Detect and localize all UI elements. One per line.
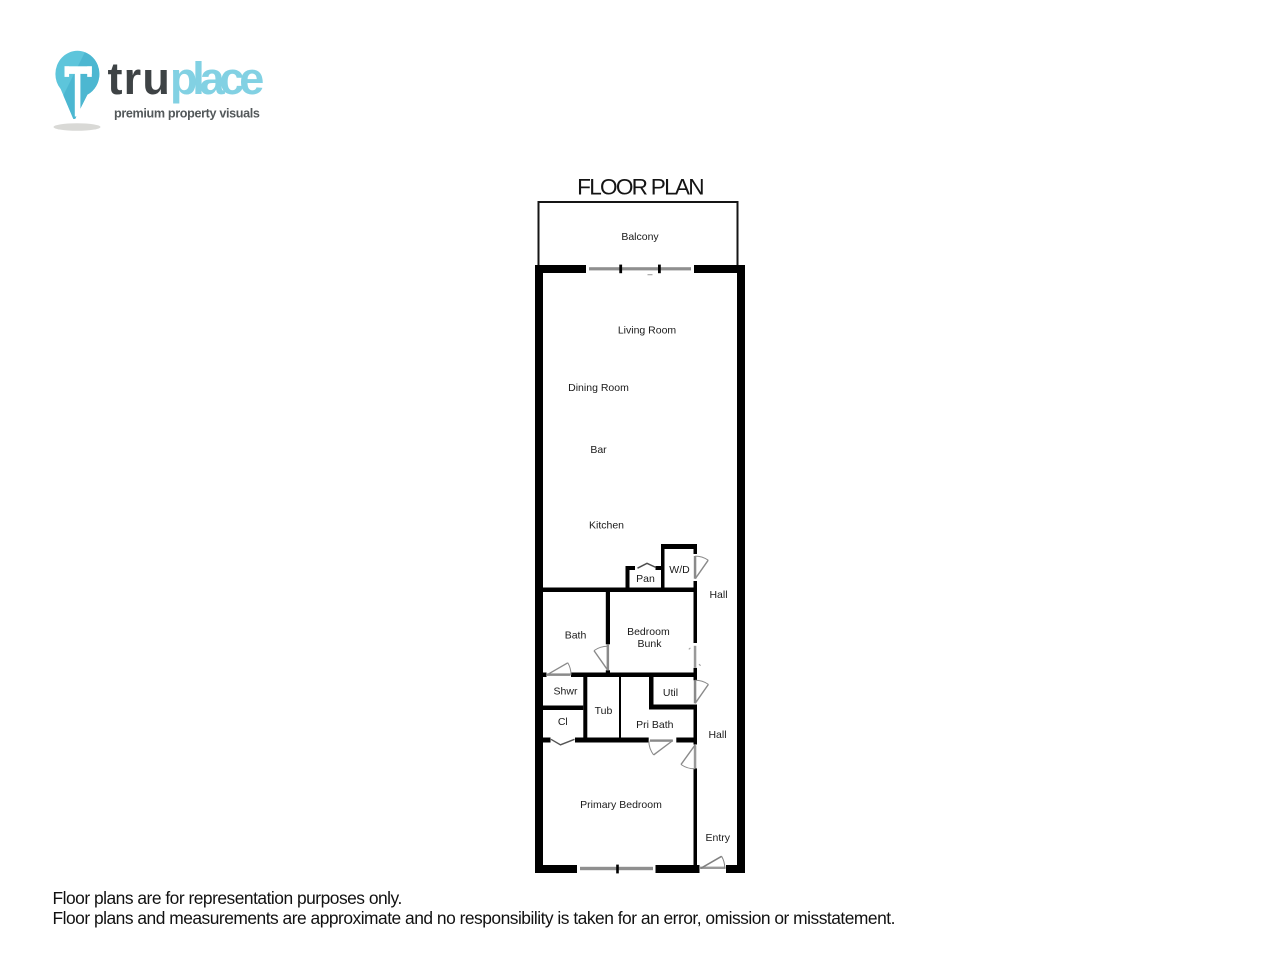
svg-text:Shwr: Shwr: [554, 686, 578, 698]
svg-text:Pan: Pan: [636, 573, 655, 585]
svg-text:Bunk: Bunk: [638, 638, 663, 650]
svg-text:Hall: Hall: [708, 729, 726, 741]
svg-text:Primary Bedroom: Primary Bedroom: [580, 799, 662, 811]
svg-text:Balcony: Balcony: [621, 231, 659, 243]
svg-text:Bedroom: Bedroom: [627, 626, 670, 638]
svg-text:Cl: Cl: [558, 716, 568, 728]
svg-text:Bar: Bar: [590, 444, 607, 456]
svg-text:W/D: W/D: [669, 564, 690, 576]
svg-text:Util: Util: [663, 687, 678, 699]
svg-text:Kitchen: Kitchen: [589, 520, 624, 532]
svg-text:Pri Bath: Pri Bath: [636, 719, 674, 731]
svg-text:Hall: Hall: [709, 589, 727, 601]
svg-text:Living Room: Living Room: [618, 325, 677, 337]
svg-text:Dining Room: Dining Room: [568, 382, 629, 394]
svg-text:FLOOR PLAN: FLOOR PLAN: [577, 174, 703, 199]
svg-text:Entry: Entry: [706, 832, 731, 844]
svg-text:Tub: Tub: [595, 705, 613, 717]
svg-text:Bath: Bath: [565, 630, 587, 642]
